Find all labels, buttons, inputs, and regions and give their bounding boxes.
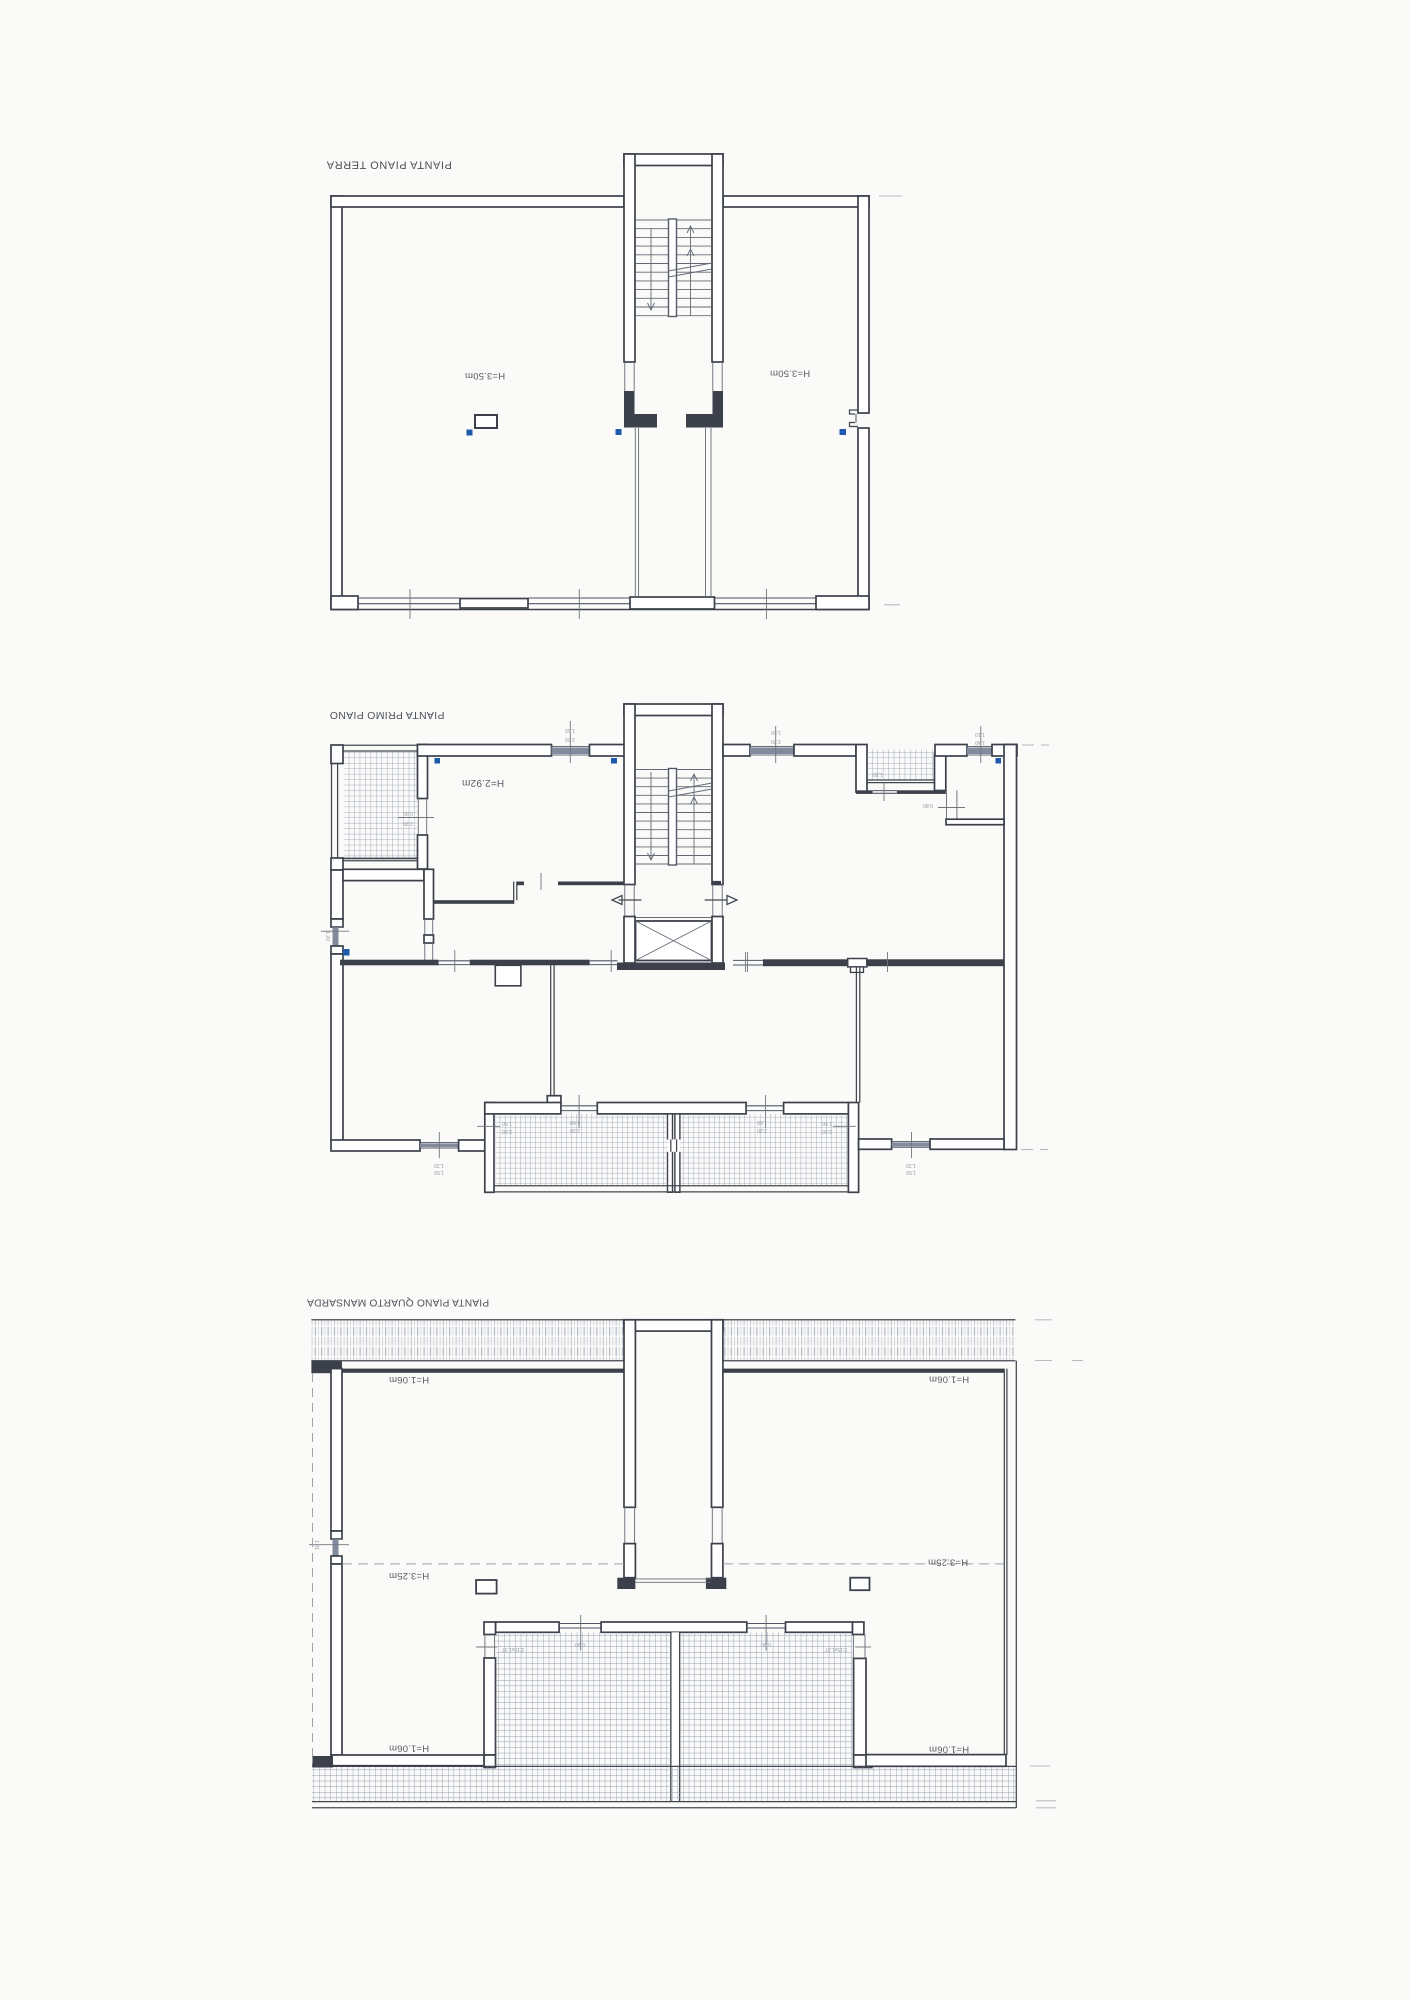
svg-text:1.50: 1.50	[565, 727, 575, 733]
svg-text:H=3.25m: H=3.25m	[928, 1556, 968, 1567]
svg-text:1.50: 1.50	[502, 1120, 512, 1126]
svg-text:H=3.50m: H=3.50m	[465, 370, 505, 381]
svg-text:1.20: 1.20	[906, 1162, 916, 1168]
svg-text:1.20: 1.20	[434, 1162, 444, 1168]
svg-text:H=3.50m: H=3.50m	[770, 367, 810, 378]
svg-text:PIANTA PIANO QUARTO MANSARDA: PIANTA PIANO QUARTO MANSARDA	[307, 1296, 489, 1307]
svg-text:2.20: 2.20	[822, 1128, 832, 1134]
svg-text:H=1.06m: H=1.06m	[929, 1744, 969, 1755]
svg-text:1.31: 1.31	[313, 1540, 319, 1550]
svg-text:1.50: 1.50	[771, 729, 781, 735]
svg-text:H=3.25m: H=3.25m	[389, 1570, 429, 1581]
svg-text:1.30: 1.30	[873, 771, 883, 777]
svg-text:H=1.06m: H=1.06m	[929, 1373, 969, 1384]
svg-text:H=1.06m: H=1.06m	[389, 1374, 429, 1385]
svg-text:2.20: 2.20	[771, 738, 781, 744]
svg-text:2.20: 2.20	[502, 1128, 512, 1134]
svg-text:1.40: 1.40	[975, 739, 985, 745]
svg-text:1.20: 1.20	[324, 931, 330, 941]
svg-text:2.20: 2.20	[403, 820, 413, 826]
svg-text:PIANTA PIANO TERRA: PIANTA PIANO TERRA	[326, 159, 452, 171]
svg-text:2.20: 2.20	[565, 736, 575, 742]
svg-text:0.80: 0.80	[923, 802, 933, 808]
svg-text:H=1.06m: H=1.06m	[389, 1743, 429, 1754]
svg-text:PIANTA PRIMO PIANO: PIANTA PRIMO PIANO	[330, 709, 445, 721]
svg-text:1.10: 1.10	[975, 731, 985, 737]
svg-text:H=2.92m: H=2.92m	[462, 777, 504, 788]
svg-text:1.50: 1.50	[906, 1169, 916, 1175]
svg-text:1.50: 1.50	[822, 1120, 832, 1126]
svg-text:1.50: 1.50	[434, 1169, 444, 1175]
svg-text:0.90: 0.90	[403, 810, 413, 816]
